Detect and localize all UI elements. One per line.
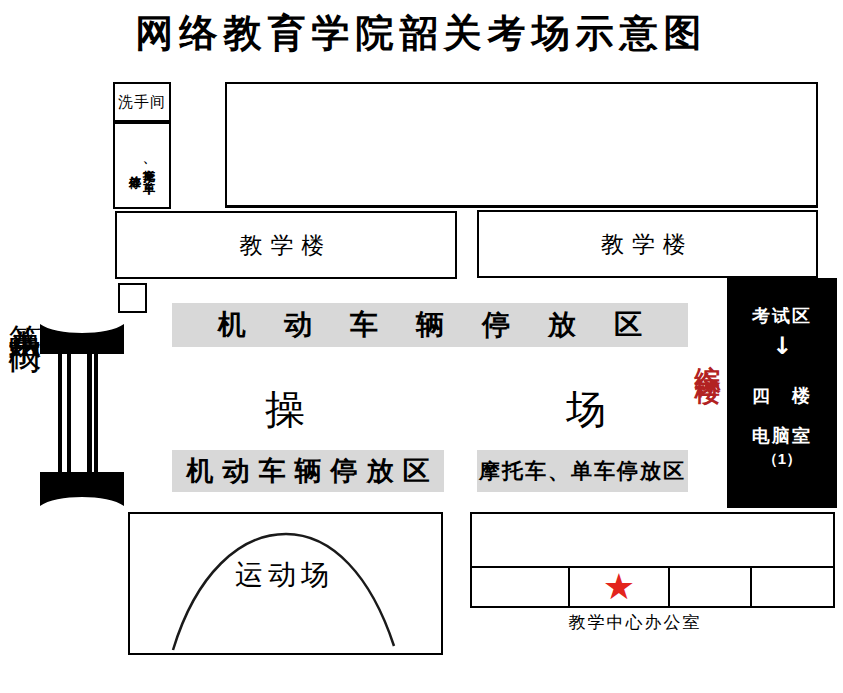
playground-char-left: 操 xyxy=(265,382,305,437)
page-title: 网络教育学院韶关考场示意图 xyxy=(0,8,843,60)
moto-bike-parking-line1: 摩托车、单车 xyxy=(142,160,156,172)
school-gate-icon xyxy=(40,318,124,508)
star-icon: ★ xyxy=(603,569,635,605)
playground-char-right: 场 xyxy=(566,382,606,437)
sports-field-box: 运动场 xyxy=(128,512,443,655)
exam-venue-diagram: 网络教育学院韶关考场示意图 洗手间 摩托车、单车 停放处 教学楼 教学楼 机动车… xyxy=(0,0,843,693)
office-room-row: ★ xyxy=(470,566,835,608)
motor-parking-zone-top: 机动车辆停放区 xyxy=(172,303,688,347)
moto-bike-parking-zone-bottom: 摩托车、单车停放区 xyxy=(477,450,688,492)
teaching-building-right-label: 教学楼 xyxy=(601,229,694,260)
exam-area-label: 考试区 xyxy=(752,304,812,328)
office-room-cell xyxy=(670,568,752,606)
down-arrow-icon: ↓ xyxy=(772,332,792,360)
computer-room-number: （1） xyxy=(763,450,801,469)
school-gate-label: 第八中学校门 xyxy=(8,298,42,518)
office-building-outline xyxy=(470,512,835,568)
teaching-center-office-label: 教学中心办公室 xyxy=(545,611,725,634)
exam-area-block: 考试区 ↓ 四 楼 电脑室 （1） xyxy=(727,278,837,508)
small-annex-box xyxy=(118,283,147,313)
teaching-building-left-label: 教学楼 xyxy=(240,230,333,261)
top-building-outline xyxy=(225,82,818,208)
office-room-cell xyxy=(752,568,833,606)
washroom-label: 洗手间 xyxy=(118,93,166,112)
washroom-box: 洗手间 xyxy=(113,82,171,122)
moto-bike-parking-zone-bottom-label: 摩托车、单车停放区 xyxy=(479,457,686,485)
motor-parking-zone-top-label: 机动车辆停放区 xyxy=(180,306,680,344)
sports-field-label: 运动场 xyxy=(235,556,334,594)
floor-label: 四 楼 xyxy=(752,384,812,408)
teaching-building-left: 教学楼 xyxy=(115,211,457,279)
motor-parking-zone-bottom: 机动车辆停放区 xyxy=(172,450,444,492)
motor-parking-zone-bottom-label: 机动车辆停放区 xyxy=(178,453,439,489)
teaching-building-right: 教学楼 xyxy=(477,210,818,278)
computer-room-label: 电脑室 xyxy=(752,424,812,448)
moto-bike-parking-box: 摩托车、单车 停放处 xyxy=(113,122,171,209)
comprehensive-building-label: 综合楼 xyxy=(693,344,721,444)
office-room-cell xyxy=(472,568,570,606)
office-room-cell-star: ★ xyxy=(570,568,670,606)
